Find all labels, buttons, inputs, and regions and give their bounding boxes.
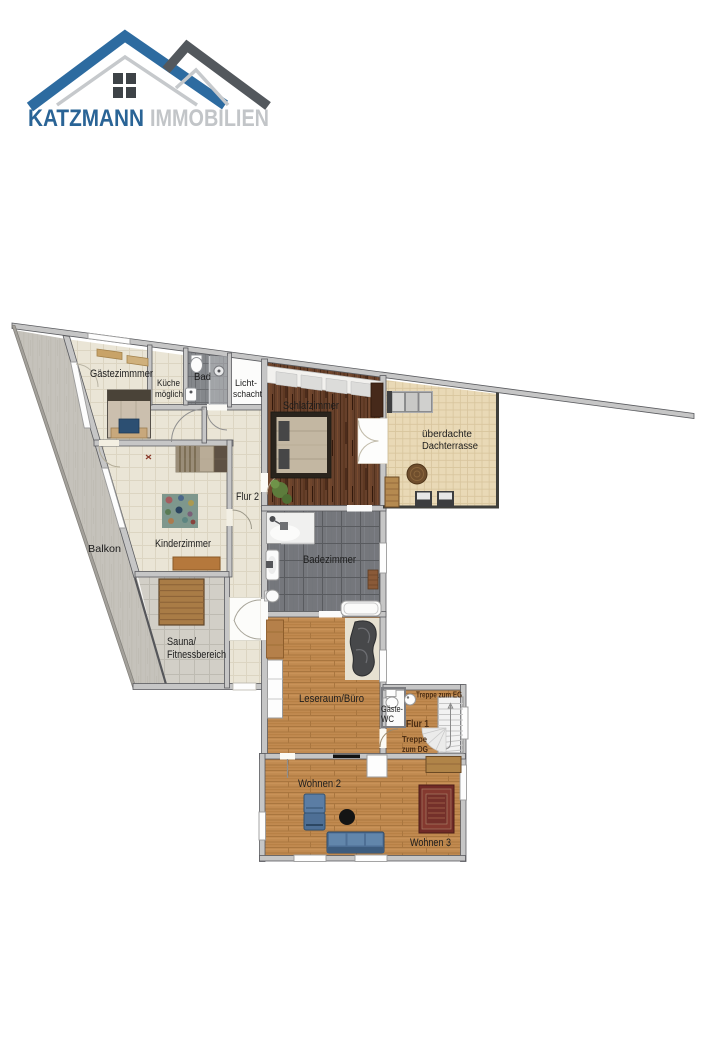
svg-text:Dachterrasse: Dachterrasse [422, 441, 478, 452]
svg-text:Bad: Bad [194, 371, 211, 383]
svg-text:IMMOBILIEN: IMMOBILIEN [150, 105, 269, 132]
svg-text:Balkon: Balkon [88, 543, 121, 555]
svg-text:möglich: möglich [155, 389, 183, 400]
svg-text:Wohnen 2: Wohnen 2 [298, 778, 341, 790]
svg-text:zum DG: zum DG [402, 744, 428, 754]
svg-text:schacht: schacht [233, 389, 262, 400]
svg-text:Licht-: Licht- [235, 378, 257, 389]
svg-text:Treppe zum EG: Treppe zum EG [416, 690, 462, 700]
svg-text:Flur 1: Flur 1 [406, 718, 429, 730]
svg-text:Leseraum/Büro: Leseraum/Büro [299, 693, 364, 705]
svg-text:Gästezimmmer: Gästezimmmer [90, 368, 153, 380]
svg-text:überdachte: überdachte [422, 429, 472, 440]
svg-text:WC: WC [381, 714, 394, 724]
svg-text:Sauna/: Sauna/ [167, 636, 197, 648]
svg-text:Kinderzimmer: Kinderzimmer [155, 538, 211, 550]
svg-text:Wohnen 3: Wohnen 3 [410, 837, 451, 849]
svg-text:Küche: Küche [157, 378, 180, 389]
svg-text:Treppe: Treppe [402, 734, 427, 744]
svg-text:Fitnessbereich: Fitnessbereich [167, 649, 226, 661]
svg-text:Schlafzimmer: Schlafzimmer [283, 400, 339, 412]
svg-text:Gäste-: Gäste- [381, 704, 403, 714]
svg-text:Flur 2: Flur 2 [236, 491, 259, 503]
svg-text:Badezimmer: Badezimmer [303, 554, 356, 566]
svg-text:KATZMANN: KATZMANN [28, 105, 144, 132]
